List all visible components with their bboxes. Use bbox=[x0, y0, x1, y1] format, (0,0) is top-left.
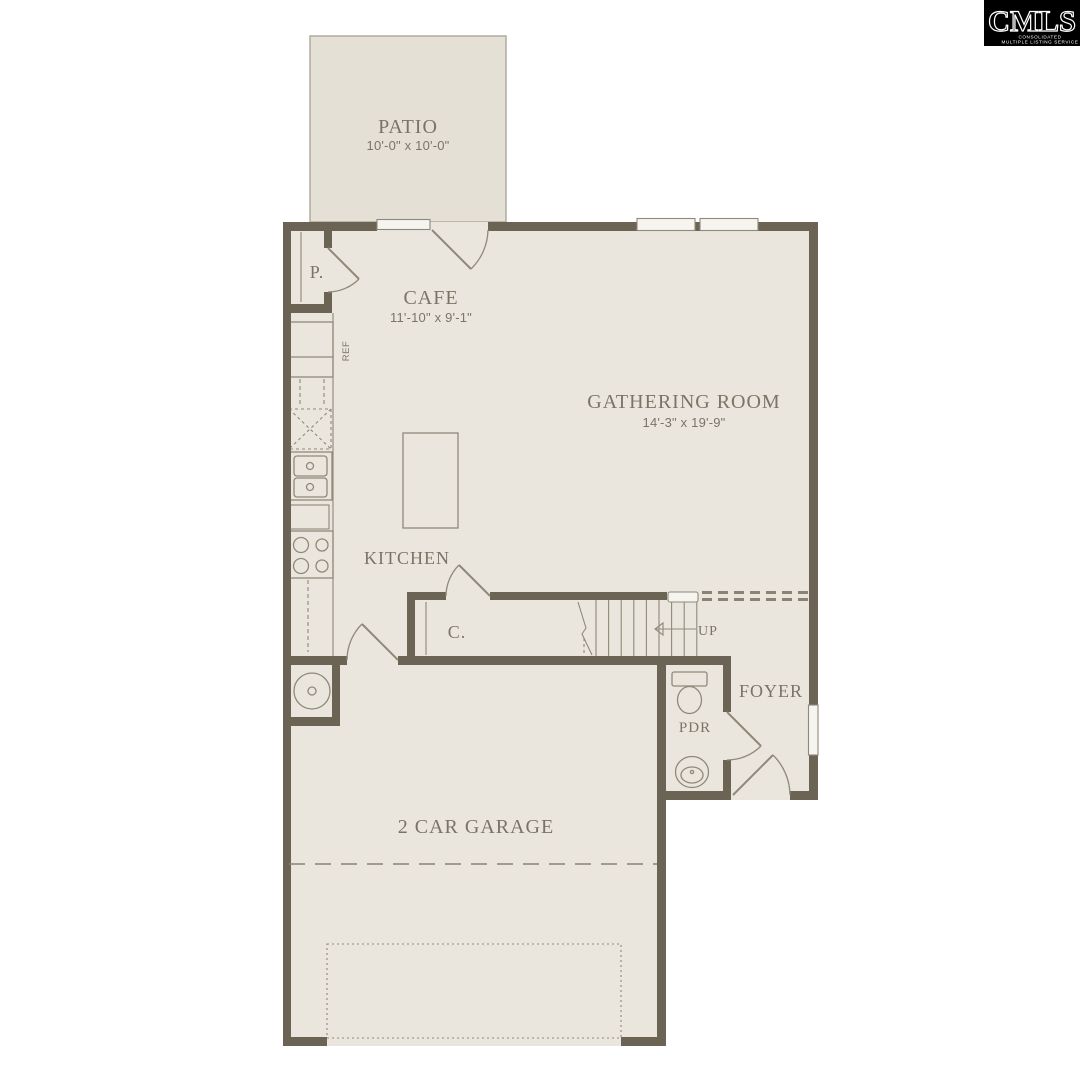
floor-plan-canvas: PATIO 10'-0" x 10'-0" CAFE 11'-10" x 9'-… bbox=[0, 0, 1080, 1080]
gathering-window-left bbox=[637, 219, 695, 231]
logo-tagline-2: MULTIPLE LISTING SERVICE bbox=[1001, 40, 1078, 45]
patio-dims: 10'-0" x 10'-0" bbox=[367, 138, 450, 153]
patio-label: PATIO bbox=[378, 116, 438, 138]
cafe-label: CAFE bbox=[403, 287, 458, 309]
gathering-room-dims: 14'-3" x 19'-9" bbox=[643, 415, 726, 430]
foyer-label: FOYER bbox=[739, 681, 803, 701]
logo-wordmark: CMLS bbox=[988, 5, 1076, 38]
cmls-logo: CMLS CONSOLIDATED MULTIPLE LISTING SERVI… bbox=[984, 0, 1080, 46]
closet-label: C. bbox=[448, 622, 467, 642]
garage-label: 2 CAR GARAGE bbox=[398, 816, 554, 838]
cafe-dims: 11'-10" x 9'-1" bbox=[390, 310, 472, 325]
pantry-label: P. bbox=[310, 262, 325, 282]
powder-room-label: PDR bbox=[679, 720, 711, 736]
gathering-window-right bbox=[700, 219, 758, 231]
refrigerator-label: REF bbox=[341, 341, 352, 362]
cafe-window bbox=[377, 220, 430, 230]
gathering-room-label: GATHERING ROOM bbox=[587, 391, 780, 413]
stair-newel bbox=[668, 592, 698, 602]
up-label: UP bbox=[698, 624, 718, 639]
foyer-window bbox=[809, 705, 819, 755]
floor-plan-page: PATIO 10'-0" x 10'-0" CAFE 11'-10" x 9'-… bbox=[0, 0, 1080, 1080]
kitchen-label: KITCHEN bbox=[364, 548, 450, 568]
